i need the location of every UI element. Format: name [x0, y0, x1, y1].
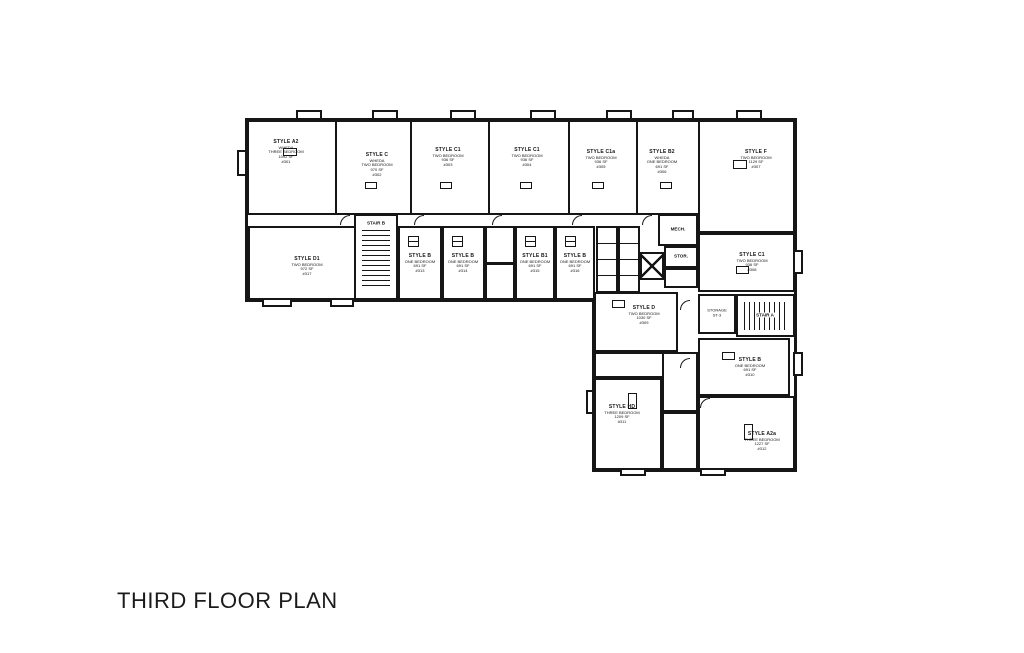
unit-c1-room-3 [698, 233, 795, 292]
closet-fixture [565, 236, 576, 247]
drawing-sheet: STYLE A2 WHEDA THREE BEDROOM 1092 SF #30… [0, 0, 1024, 653]
stair-b-treads [362, 230, 390, 288]
bay-bump [793, 352, 803, 376]
unit-b-room-1 [398, 226, 442, 300]
unit-c1-room-2 [488, 120, 570, 215]
bay-bump [296, 110, 322, 120]
bath-core-room [485, 226, 515, 264]
unit-a2-room [247, 120, 337, 215]
bay-bump [586, 390, 594, 414]
mech-label: MECH. [670, 227, 687, 232]
elevator-shaft [640, 252, 664, 280]
stair-a-label: STAIR A [755, 313, 775, 318]
storage-closets-column [618, 226, 640, 298]
bay-bump [530, 110, 556, 120]
kitchen-island-fixture [440, 182, 452, 189]
kitchen-island-fixture [612, 300, 625, 308]
closet-fixture [408, 236, 419, 247]
storage-room [698, 294, 736, 334]
storage-closets-column [596, 226, 618, 298]
unit-b-room-2 [442, 226, 485, 300]
kitchen-island-fixture [365, 182, 377, 189]
unit-f-room [698, 120, 795, 233]
kitchen-island-fixture [744, 424, 753, 440]
unit-hd-room [594, 378, 662, 470]
bay-bump [672, 110, 694, 120]
unit-b-room-4 [698, 338, 790, 396]
kitchen-island-fixture [520, 182, 532, 189]
bath-core-room [662, 412, 698, 470]
unit-d-room [594, 292, 678, 352]
unit-c1-room-1 [410, 120, 490, 215]
kitchen-island-fixture [660, 182, 672, 189]
storage-room-small [664, 268, 698, 288]
bath-core-room [662, 352, 698, 412]
unit-d1-room [248, 226, 356, 300]
bay-bump [606, 110, 632, 120]
bath-core-room [485, 263, 515, 300]
unit-c1a-room [568, 120, 638, 215]
closet-fixture [525, 236, 536, 247]
kitchen-island-fixture [283, 148, 297, 156]
kitchen-island-fixture [736, 266, 749, 274]
storage-small-label: STOR. [673, 254, 689, 259]
unit-b2-room [636, 120, 700, 215]
stair-b-label: STAIR B [366, 221, 386, 226]
closet-fixture [452, 236, 463, 247]
bay-bump [372, 110, 398, 120]
bay-bump [237, 150, 247, 176]
kitchen-island-fixture [592, 182, 604, 189]
sheet-title: THIRD FLOOR PLAN [117, 588, 338, 614]
kitchen-island-fixture [722, 352, 735, 360]
bay-bump [450, 110, 476, 120]
bay-bump [736, 110, 762, 120]
kitchen-island-fixture [733, 160, 747, 169]
kitchen-island-fixture [628, 393, 637, 409]
unit-c-room [335, 120, 412, 215]
